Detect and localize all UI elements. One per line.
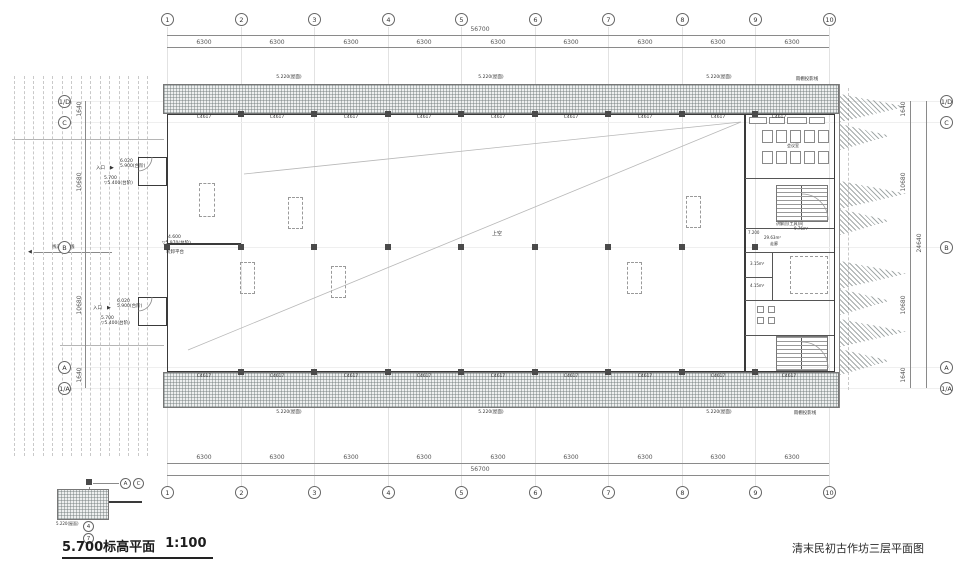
arrow-left-icon: ◀ [28,249,32,255]
axis-bubble: 10 [823,486,836,499]
column-marker [752,369,758,375]
table [818,130,829,143]
dim-label: 6300 [189,455,219,461]
column-marker [532,111,538,117]
elevation-label: 5.220(屋面) [474,75,508,80]
axis-bubble: C [133,478,144,489]
dim-label: 56700 [460,467,500,473]
arrow-right-icon: ▶ [110,165,114,171]
room-area-label: 4.15m² [750,284,764,289]
table [818,151,829,164]
cabinet [749,117,767,124]
window-tag: C4617 [415,115,433,120]
table [776,151,787,164]
axis-bubble: 4 [83,521,94,532]
axis-bubble: 8 [676,486,689,499]
column-marker [385,369,391,375]
window-tag: C4617 [770,115,788,120]
dim-label: 6300 [630,40,660,46]
elevation-label: 5.220(屋面) [56,522,79,527]
axis-bubble: B [940,241,953,254]
elev-value: 5.900(台阶) [117,304,142,309]
cabinet [787,117,807,124]
dim-label: 6300 [556,40,586,46]
axis-bubble: 1 [161,486,174,499]
dim-line [167,35,829,36]
column-marker [605,111,611,117]
axis-bubble: 6 [529,486,542,499]
axis-bubble: 1/D [58,95,71,108]
dim-label: 10680 [77,288,83,322]
column-marker [679,111,685,117]
column-marker [752,111,758,117]
projection-edge-line [60,345,164,346]
dashed-projection-line [109,76,110,456]
dashed-projection-line [33,76,34,456]
stair [776,185,828,222]
dim-line [167,475,829,476]
elev-value: 5.900(台阶) [120,164,145,169]
roof-hatch-band [163,84,839,114]
dim-label: 1640 [77,358,83,392]
canopy-projection-label: 雨棚投影线 [788,77,826,82]
elevation-label: 5.700 ▽5.400(台阶) [101,316,130,327]
room-area-label: 3.15m² [750,262,764,267]
elevation-label: 5.700 ▽5.400(台阶) [104,176,133,187]
table [804,130,815,143]
dim-label: 56700 [460,27,500,33]
dim-label: 24640 [917,226,923,260]
dim-label: 6300 [336,455,366,461]
column-marker [532,369,538,375]
column-marker [605,244,611,250]
dashed-projection-line [119,76,120,456]
window-tag: C4617 [562,374,580,379]
dim-label: 10680 [901,288,907,322]
dashed-projection-line [43,76,44,456]
window-tag: C4617 [709,115,727,120]
dashed-projection-line [71,76,72,456]
dim-line [910,101,911,388]
axis-bubble: 2 [235,13,248,26]
dim-label: 10680 [901,165,907,199]
column-marker [679,369,685,375]
canopy-projection-label: 雨棚投影线 [786,411,824,416]
axis-bubble: A [58,361,71,374]
canopy-triangle [840,349,890,375]
dashed-projection-line [24,76,25,456]
axis-bubble: 5 [455,13,468,26]
platform-label: 装卸平台 [166,250,184,255]
axis-bubble: 7 [602,13,615,26]
window-tag: C4617 [636,115,654,120]
dim-line [926,101,927,388]
dashed-projection-line [128,76,129,456]
elevation-label: 5.220(屋面) [272,75,306,80]
column-marker [458,244,464,250]
dim-line [167,463,829,464]
axis-bubble: 1/D [940,95,953,108]
equipment [768,306,775,313]
detail-roof-hatch [57,489,109,520]
equipment [757,317,764,324]
axis-bubble: 4 [382,13,395,26]
stair [776,336,828,371]
window-tag: C4617 [780,374,798,379]
detail-column [86,479,92,485]
dim-label: 1640 [901,92,907,126]
dim-label: 6300 [703,40,733,46]
dim-label: 6300 [409,40,439,46]
canopy-triangle [840,289,890,315]
elevation-label: 6.020 5.900(台阶) [117,299,142,310]
window-tag: C4617 [195,374,213,379]
window-tag: C4617 [342,115,360,120]
column-marker [532,244,538,250]
dim-label: 6300 [409,455,439,461]
dashed-projection-line [147,76,148,456]
window-tag: C4617 [636,374,654,379]
dim-label: 6300 [262,455,292,461]
column-marker [605,369,611,375]
elev-value: ▽5.400(台阶) [101,321,130,326]
dim-label: 6300 [703,455,733,461]
axis-bubble: 10 [823,13,836,26]
dim-label: 6300 [262,40,292,46]
dashed-projection-line [138,76,139,456]
column-marker [311,244,317,250]
window-tag: C4617 [489,374,507,379]
room-area-label: 9.76m² [794,227,808,232]
axis-bubble: 1/A [940,382,953,395]
dim-label: 10680 [77,165,83,199]
entrance-label: 入口 [93,306,102,311]
canopy-triangle [840,181,906,209]
elevation-label: 4.600 [168,235,181,240]
plan-scale: 1:100 [165,536,206,555]
axis-bubble: A [940,361,953,374]
column-marker [238,369,244,375]
window-tag: C4617 [268,374,286,379]
room-label: 走廊 [770,242,778,247]
axis-bubble: C [58,116,71,129]
table [762,151,773,164]
dashed-projection-line [81,76,82,456]
dim-label: 6300 [483,40,513,46]
table [790,130,801,143]
axis-bubble: 1 [161,13,174,26]
arrow-right-icon: ▶ [107,305,111,311]
window-tag: C4617 [415,374,433,379]
axis-bubble: B [58,241,71,254]
elevation-label: 5.220(屋面) [702,75,736,80]
column-marker [458,111,464,117]
axis-bubble: 5 [455,486,468,499]
dashed-projection-line [62,76,63,456]
void-label: 上空 [483,231,511,237]
elevation-label: 6.020 5.900(台阶) [120,159,145,170]
window-tag: C4617 [195,115,213,120]
plan-title: 5.700标高平面 1:100 [62,536,213,559]
dim-label: 1640 [901,358,907,392]
window-tag: C4617 [562,115,580,120]
dim-label: 6300 [777,455,807,461]
equipment [768,317,775,324]
axis-bubble: 9 [749,13,762,26]
dim-label: 6300 [777,40,807,46]
elev-value: ▽5.400(台阶) [104,181,133,186]
detail-leader [93,483,119,484]
canopy-triangle [840,94,906,122]
dashed-projection-line [52,76,53,456]
eave-line [839,84,840,408]
elevation-label: 7.200 [748,231,759,236]
floor-plan-canvas: 56700 6300 6300 6300 6300 6300 6300 6300… [0,0,960,571]
elevation-label: 5.220(屋面) [272,410,306,415]
axis-bubble: 1/A [58,382,71,395]
column-marker [238,244,244,250]
table [776,130,787,143]
window-tag: C4617 [268,115,286,120]
table [804,151,815,164]
table [790,151,801,164]
detail-wall [108,501,142,503]
column-marker [679,244,685,250]
canopy-triangle [840,319,906,347]
dashed-projection-line [100,76,101,456]
canopy-triangle [840,124,890,150]
axis-bubble: A [120,478,131,489]
axis-bubble: 2 [235,486,248,499]
column-marker [385,111,391,117]
axis-bubble: 3 [308,13,321,26]
canopy-triangle [840,261,906,289]
elevation-label: 5.220(屋面) [474,410,508,415]
axis-bubble: 6 [529,13,542,26]
axis-bubble: 3 [308,486,321,499]
axis-bubble: C [940,116,953,129]
plan-title-text: 5.700标高平面 [62,536,155,555]
dim-label: 6300 [630,455,660,461]
elevation-label: 5.220(屋面) [702,410,736,415]
window-tag: C4617 [709,374,727,379]
elevation-label: ▽5.970(台阶) [162,241,191,246]
sheet-title: 清末民初古作坊三层平面图 [792,540,924,556]
window-tag: C4617 [342,374,360,379]
axis-bubble: 9 [749,486,762,499]
room-label: 会议室 [768,144,818,149]
dim-label: 6300 [336,40,366,46]
column-marker [238,111,244,117]
dim-line [167,47,829,48]
canopy-triangle [840,209,890,235]
dashed-projection-line [90,76,91,456]
axis-bubble: 8 [676,13,689,26]
dim-label: 6300 [189,40,219,46]
axis-bubble: 7 [602,486,615,499]
dim-label: 6300 [483,455,513,461]
axis-bubble: 4 [382,486,395,499]
equipment [757,306,764,313]
dim-label: 1640 [77,92,83,126]
dim-line [85,101,86,388]
entrance-label: 入口 [96,166,105,171]
dim-label: 6300 [556,455,586,461]
window-tag: C4617 [489,115,507,120]
cabinet [809,117,825,124]
building-outline [167,114,835,372]
projection-edge-line [12,139,164,140]
dashed-projection-line [14,76,15,456]
column-marker [311,111,317,117]
table [762,130,773,143]
column-marker [458,369,464,375]
column-marker [752,244,758,250]
column-marker [385,244,391,250]
column-marker [311,369,317,375]
